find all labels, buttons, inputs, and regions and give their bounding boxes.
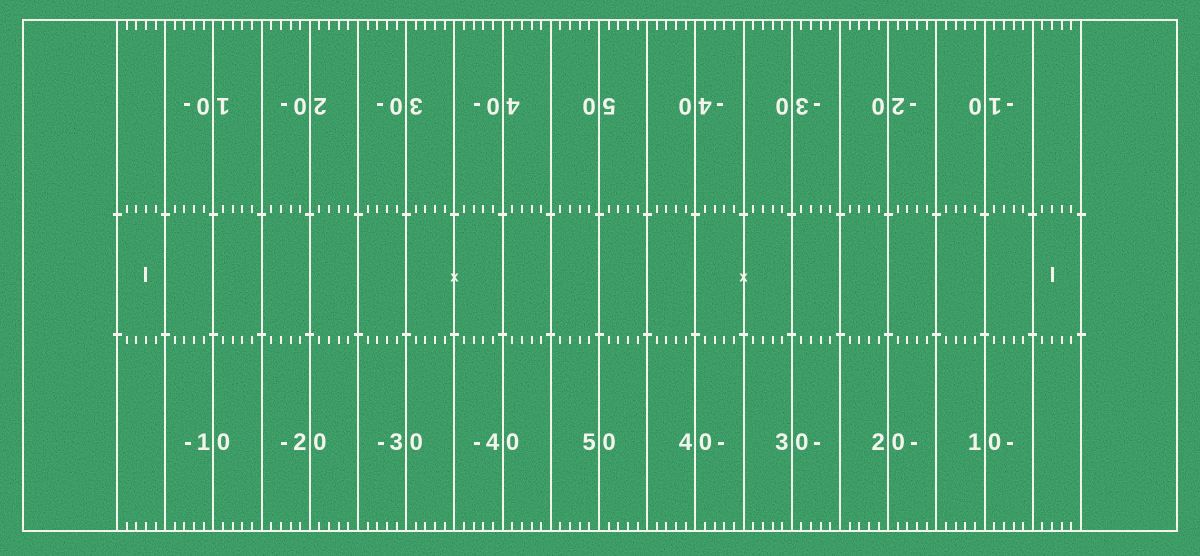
football-field-diagram: 102030405040302010102030405040302010 xx [0, 0, 1200, 556]
kickoff-x-mark: x [739, 270, 747, 285]
kickoff-x-mark: x [450, 270, 458, 285]
conversion-mark [144, 267, 147, 282]
special-marks-layer: xx [0, 0, 1200, 556]
conversion-mark [1051, 267, 1054, 282]
